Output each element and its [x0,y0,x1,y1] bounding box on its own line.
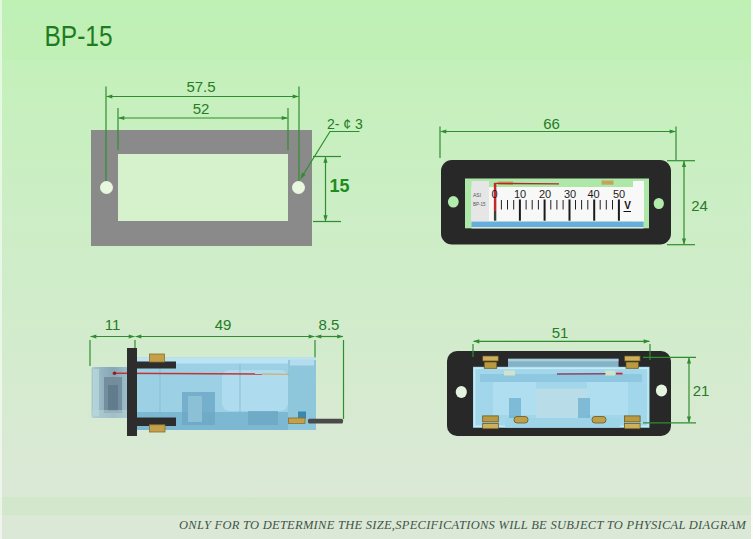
svg-text:0: 0 [492,188,498,200]
svg-text:2- ¢ 3: 2- ¢ 3 [327,116,363,132]
svg-text:V: V [624,200,631,211]
svg-text:11: 11 [105,316,121,333]
svg-text:20: 20 [539,188,551,200]
svg-text:66: 66 [543,115,560,132]
svg-text:21: 21 [693,382,710,399]
svg-text:ONLY FOR TO DETERMINE THE SIZE: ONLY FOR TO DETERMINE THE SIZE,SPECIFICA… [179,518,747,532]
svg-text:24: 24 [691,197,708,214]
svg-text:52: 52 [193,100,210,117]
svg-text:BP-15: BP-15 [45,20,113,52]
svg-text:BP-15: BP-15 [473,202,486,207]
svg-text:15: 15 [329,176,349,196]
svg-text:49: 49 [215,316,232,333]
svg-text:57.5: 57.5 [186,78,215,95]
svg-text:50: 50 [613,188,625,200]
svg-text:40: 40 [587,188,599,200]
svg-text:8.5: 8.5 [319,316,340,333]
svg-text:ASI: ASI [473,192,481,198]
svg-text:10: 10 [514,188,526,200]
svg-text:30: 30 [564,188,576,200]
svg-text:51: 51 [552,324,569,341]
